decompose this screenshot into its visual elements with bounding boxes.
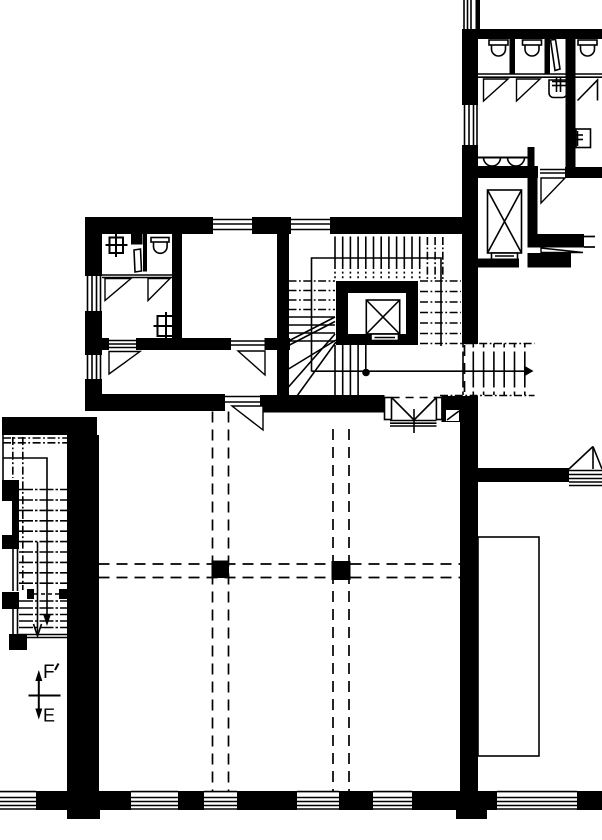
svg-text:E: E — [43, 706, 55, 726]
svg-text:F: F — [43, 662, 55, 683]
